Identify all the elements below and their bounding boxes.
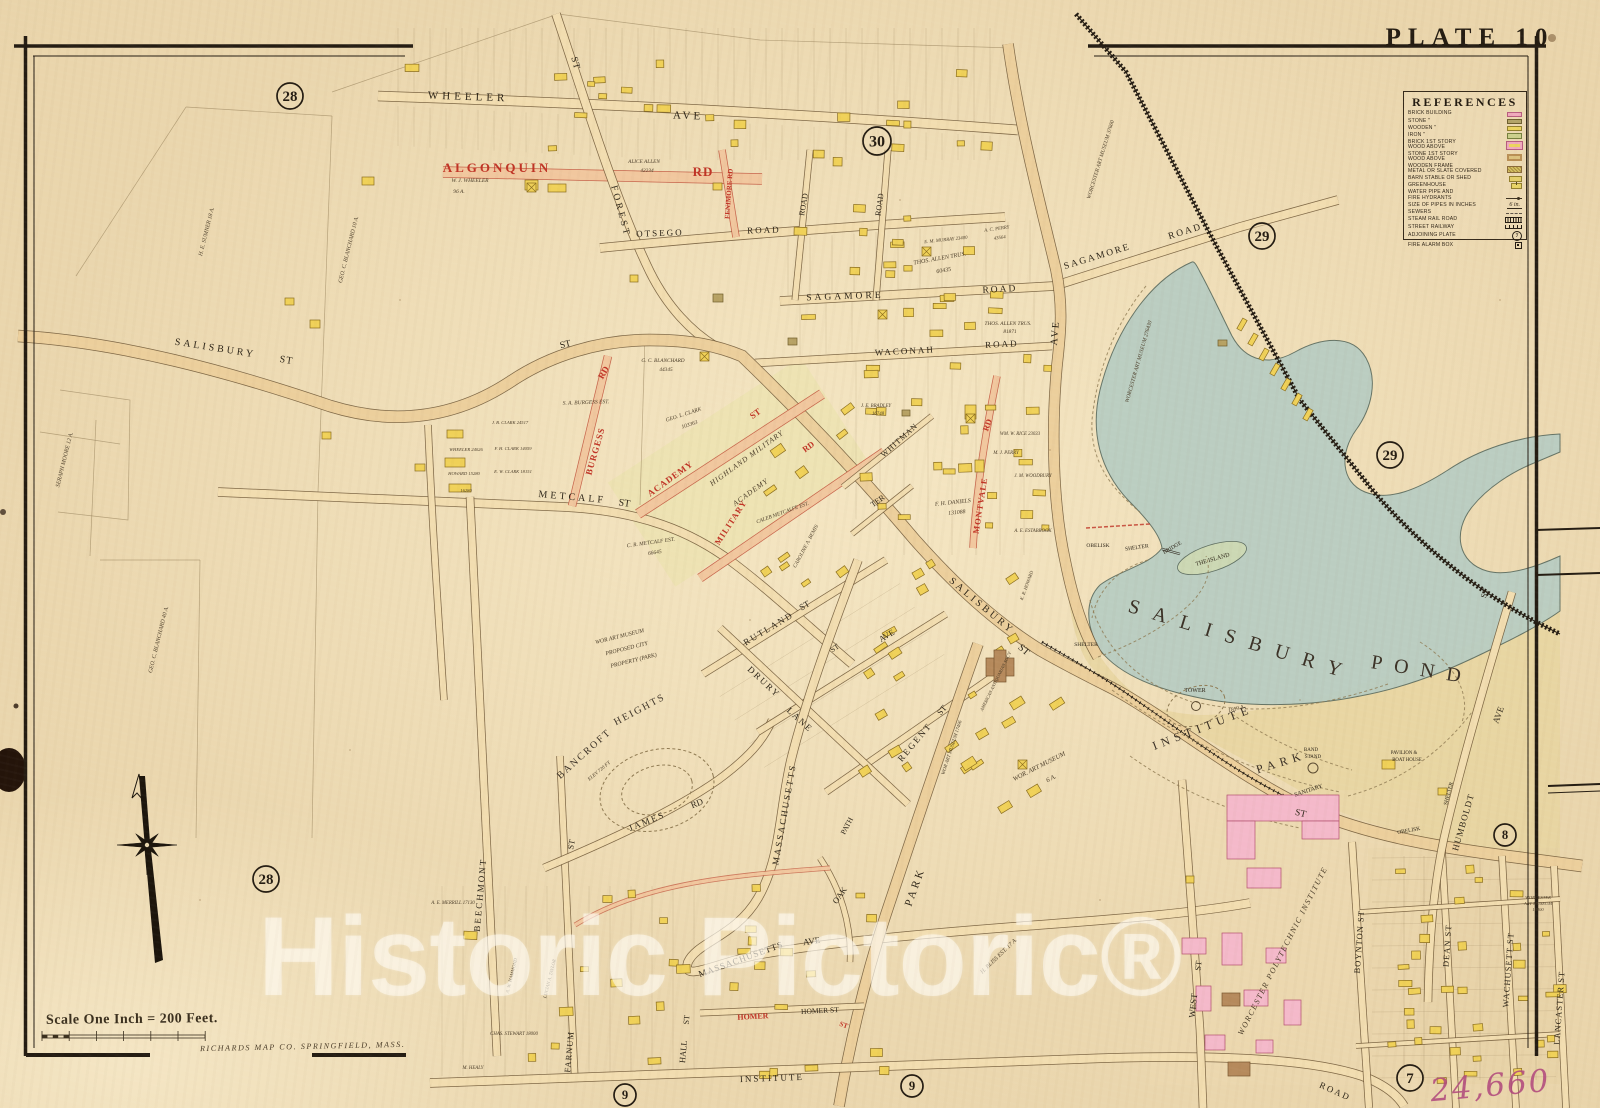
- map-label: G. C. BLANCHARD: [641, 358, 684, 364]
- map-label: ELEV 720 FT: [587, 760, 613, 783]
- map-label: LUCIAN A. TAYLOR: [543, 959, 558, 1000]
- svg-text:29: 29: [1383, 448, 1398, 464]
- svg-text:8: 8: [1502, 828, 1508, 842]
- legend-row-label: WOODEN FRAMEMETAL OR SLATE COVERED: [1408, 164, 1482, 175]
- map-label: HALL: [677, 1040, 689, 1063]
- legend-row: FIRE ALARM BOX: [1408, 242, 1522, 249]
- map-label: ST: [1193, 959, 1204, 971]
- map-label: ST: [682, 1015, 692, 1025]
- map-label: 43564: [994, 235, 1007, 242]
- legend-swatch-stone-icon: [1507, 119, 1522, 125]
- map-label: AVE: [673, 109, 704, 122]
- map-label: 131088: [948, 509, 966, 517]
- map-label: ALICE ALLEN: [627, 159, 660, 165]
- legend-row: WOODEN FRAMEMETAL OR SLATE COVERED: [1408, 164, 1522, 175]
- legend-title: REFERENCES: [1408, 95, 1522, 110]
- legend-swatch-iron-icon: [1507, 133, 1522, 139]
- legend-swatch-pipes-icon: 6 in.: [1507, 202, 1522, 209]
- map-label: K. R. HOWARD: [1020, 570, 1036, 602]
- adjoining-plate-circle: 9: [614, 1084, 636, 1106]
- map-label: SHELTER: [1125, 543, 1150, 552]
- map-label: SAGAMORE: [806, 291, 884, 304]
- legend-swatch-water-icon: [1506, 193, 1522, 199]
- svg-text:28: 28: [283, 89, 298, 105]
- legend-row-label: ADJOINING PLATE: [1408, 233, 1456, 239]
- map-label: INSTITUTE: [740, 1072, 804, 1084]
- map-canvas: WHEELERAVEOTSEGOROADFORESTSTSAGAMOREROAD…: [0, 0, 1600, 1108]
- map-label: WHITMAN: [879, 421, 920, 459]
- map-label: E. W. CLARK 18151: [493, 469, 532, 474]
- map-label: M. J. PERRY: [992, 451, 1020, 456]
- map-label: HOWARD 15280: [447, 471, 480, 476]
- svg-text:7: 7: [1406, 1071, 1414, 1087]
- legend-box: REFERENCES BRICK BUILDINGSTONE "WOODEN "…: [1403, 91, 1527, 240]
- map-label: WM. W. RICE 23033: [1000, 432, 1041, 437]
- map-label: GEO. C. BLANCHARD 10 A.: [338, 216, 360, 284]
- map-label: 42234: [640, 168, 654, 174]
- legend-swatch-rail-icon: [1505, 217, 1522, 223]
- legend-row: BRICK BUILDING: [1408, 111, 1522, 118]
- map-label: W. J. WHEELER: [451, 178, 489, 184]
- legend-row: WOODEN ": [1408, 125, 1522, 132]
- adjoining-plate-circle: 30: [863, 127, 891, 155]
- road-label-red: ALGONQUIN: [443, 160, 552, 175]
- map-label: ROAD: [747, 224, 781, 235]
- map-label: J. E. BRADLEY: [861, 404, 893, 409]
- map-label: ST: [565, 838, 577, 850]
- map-label: S. A. BURGESS EST.: [563, 399, 610, 407]
- legend-swatch-fire-icon: [1515, 242, 1522, 249]
- legend-row: STONE 1ST STORYWOOD ABOVE: [1408, 152, 1522, 163]
- atlas-map-page: WHEELERAVEOTSEGOROADFORESTSTSAGAMOREROAD…: [0, 0, 1600, 1108]
- map-label: 16748: [872, 412, 885, 417]
- salisbury-pond: [1089, 262, 1560, 705]
- legend-row-label: STONE ": [1408, 119, 1430, 125]
- map-label: 44345: [659, 367, 673, 373]
- map-label: A. W. HAMMOND: [506, 957, 520, 994]
- scale-note: Scale One Inch = 200 Feet.: [46, 1011, 218, 1029]
- map-label: WORCESTER: [1525, 895, 1551, 900]
- map-label: F. H. DANIELS: [934, 498, 971, 508]
- legend-row: ADJOINING PLATE7: [1408, 231, 1522, 241]
- map-label: OTSEGO: [636, 227, 684, 239]
- map-label: HOMER ST: [801, 1005, 840, 1016]
- legend-row-label: BRICK BUILDING: [1408, 111, 1452, 117]
- map-label: H. E. SUMNER 18 A.: [198, 207, 216, 258]
- map-label: H. BLISS EST. 17 A.: [979, 937, 1019, 976]
- map-label: A. E. ESTABROOK: [1013, 529, 1052, 534]
- map-label: BANCROFT: [555, 727, 614, 782]
- legend-swatch-metal-icon: [1507, 166, 1522, 173]
- map-label: M. HEALY: [462, 1066, 485, 1071]
- map-label: THOS. ALLEN TRUS.: [985, 321, 1032, 327]
- legend-row: WATER PIPE ANDFIRE HYDRANTS: [1408, 190, 1522, 201]
- land-tints: [608, 357, 1560, 1085]
- map-label: 6 A.: [1045, 773, 1058, 784]
- map-label: PAVILION &: [1391, 751, 1418, 756]
- road-label-red: ST: [838, 1020, 849, 1031]
- map-label: ROAD: [797, 192, 810, 216]
- map-label: J. M. WOODBURY: [1014, 474, 1053, 479]
- legend-row: BRICK 1ST STORYWOOD ABOVE: [1408, 140, 1522, 151]
- svg-text:28: 28: [259, 872, 274, 888]
- adjoining-plate-circle: 7: [1397, 1065, 1423, 1091]
- legend-row: STREET RAILWAY: [1408, 224, 1522, 231]
- map-label: WHEELER 24026: [449, 447, 483, 452]
- map-label: 14800: [1532, 907, 1544, 912]
- map-label: GEO. C. BLANCHARD 40 A.: [147, 605, 170, 673]
- legend-row: STEAM RAIL ROAD: [1408, 217, 1522, 224]
- legend-row-label: SIZE OF PIPES IN INCHES: [1408, 203, 1476, 209]
- map-label: ROAD: [985, 338, 1019, 350]
- adjoining-plate-circle: 28: [277, 83, 303, 109]
- map-label: OBELISK: [1086, 543, 1109, 549]
- adjoining-plate-circle: 28: [253, 866, 279, 892]
- map-label: A. E. MERRILL 17130: [430, 901, 475, 906]
- legend-row-label: WOODEN ": [1408, 126, 1436, 132]
- legend-row-label: BARN STABLE OR SHED: [1408, 176, 1471, 182]
- map-label: 60435: [936, 266, 952, 275]
- map-label: CAROLINE A. BEMIS: [792, 524, 820, 569]
- legend-swatch-srail-icon: [1505, 225, 1522, 229]
- legend-row-label: FIRE ALARM BOX: [1408, 243, 1453, 249]
- legend-rows: BRICK BUILDINGSTONE "WOODEN "IRON "BRICK…: [1408, 111, 1522, 249]
- legend-swatch-wood-icon: [1507, 126, 1522, 132]
- map-label: THOS. ALLEN TRUS.: [913, 251, 966, 266]
- map-label: 96 A.: [453, 189, 465, 195]
- legend-swatch-barn-icon: [1509, 176, 1522, 182]
- svg-text:9: 9: [909, 1079, 915, 1093]
- legend-row-label: SEWERS: [1408, 210, 1431, 216]
- map-label: A. C. PERRY: [983, 225, 1011, 234]
- legend-swatch-stonewood-icon: [1507, 154, 1522, 161]
- legend-row: STONE ": [1408, 118, 1522, 125]
- map-label: RUTLAND: [741, 609, 795, 647]
- legend-row-label: IRON ": [1408, 133, 1425, 139]
- legend-row-label: STONE 1ST STORYWOOD ABOVE: [1408, 152, 1458, 163]
- map-label: E. M. MURRAY 23400: [923, 236, 968, 246]
- legend-swatch-plate-icon: 7: [1512, 231, 1522, 241]
- map-label: J. B. CLARK 24517: [492, 420, 529, 425]
- map-label: F. H. CLARK 14059: [493, 446, 532, 451]
- svg-text:30: 30: [869, 133, 885, 150]
- svg-text:29: 29: [1255, 229, 1270, 245]
- legend-row-label: BRICK 1ST STORYWOOD ABOVE: [1408, 140, 1456, 151]
- map-label: PATH: [839, 815, 856, 836]
- legend-swatch-sewer-icon: [1506, 213, 1522, 214]
- map-label: SERAPH MOORE 12 A.: [55, 432, 75, 488]
- legend-swatch-brick-icon: [1507, 112, 1522, 118]
- legend-row-label: STREET RAILWAY: [1408, 225, 1454, 231]
- map-label: AVE: [1049, 320, 1062, 346]
- map-label: 16280: [460, 488, 472, 493]
- road-label-red: RD: [693, 164, 714, 179]
- road-label-red: HOMER: [737, 1011, 769, 1022]
- adjoining-plate-circle: 8: [1494, 824, 1516, 846]
- svg-text:9: 9: [622, 1088, 628, 1102]
- map-label: SHELTER: [1074, 642, 1098, 648]
- map-label: ST: [279, 354, 294, 367]
- plate-title: PLATE 10: [1360, 24, 1580, 52]
- adjoining-plate-circle: 29: [1249, 223, 1275, 249]
- map-label: JAMES: [627, 809, 666, 833]
- legend-row: SIZE OF PIPES IN INCHES6 in.: [1408, 202, 1522, 209]
- legend-row-label: WATER PIPE ANDFIRE HYDRANTS: [1408, 190, 1454, 201]
- map-label: PARK: [903, 866, 928, 908]
- legend-swatch-brickwood-icon: [1507, 142, 1522, 149]
- map-label: BOAT HOUSE: [1392, 758, 1422, 763]
- adjoining-plate-circle: 29: [1377, 442, 1403, 468]
- legend-row: SEWERS: [1408, 210, 1522, 217]
- map-label: WORCESTER ART MUSEUM 37600: [1086, 119, 1116, 200]
- legend-row-label: STEAM RAIL ROAD: [1408, 217, 1457, 223]
- map-label: ROAD: [982, 284, 1017, 296]
- map-label: 81871: [1003, 329, 1017, 335]
- map-label: BAND: [1304, 748, 1319, 753]
- map-label: TOWER: [1184, 688, 1205, 694]
- map-label: HEIGHTS: [612, 692, 667, 728]
- map-label: SALISBURY: [947, 576, 1017, 637]
- adjoining-plate-circle: 9: [901, 1075, 923, 1097]
- map-label: STAND: [1305, 755, 1322, 760]
- map-label: ART MUSEUM: [1523, 901, 1552, 906]
- map-label: SALISBURY: [174, 337, 257, 361]
- map-label: ST: [618, 497, 631, 510]
- map-label: CHAS. STEWART 18000: [490, 1032, 538, 1037]
- legend-swatch-green-icon: [1511, 183, 1522, 189]
- legend-row: BARN STABLE OR SHED: [1408, 176, 1522, 183]
